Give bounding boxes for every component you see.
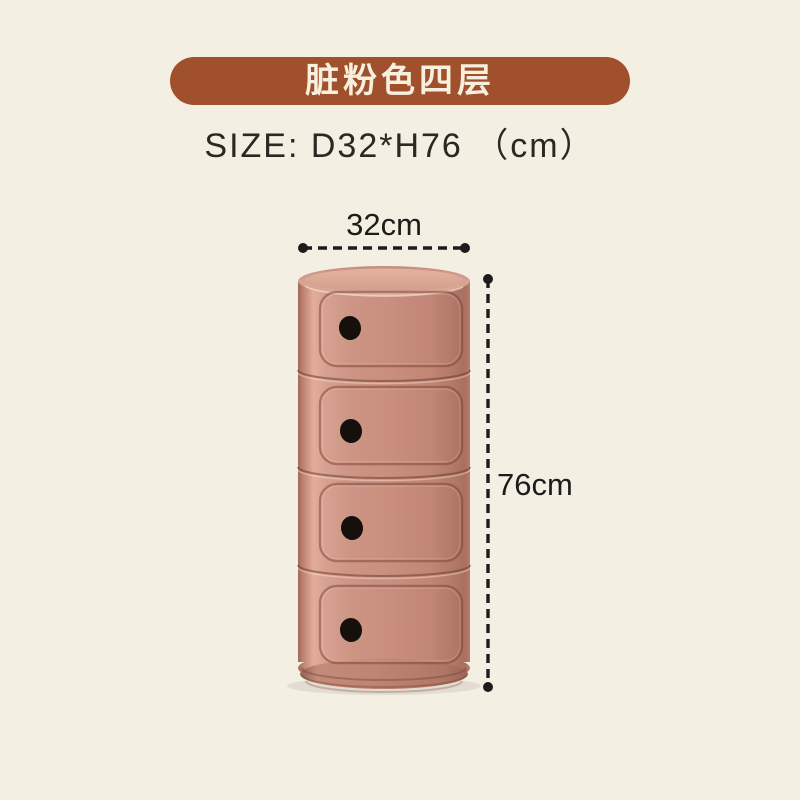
cabinet-illustration	[0, 0, 800, 800]
height-dimension-line	[483, 274, 493, 692]
width-dimension-line	[298, 243, 470, 253]
product-size-infographic: 脏粉色四层 SIZE: D32*H76 （cm） 32cm 76cm	[0, 0, 800, 800]
